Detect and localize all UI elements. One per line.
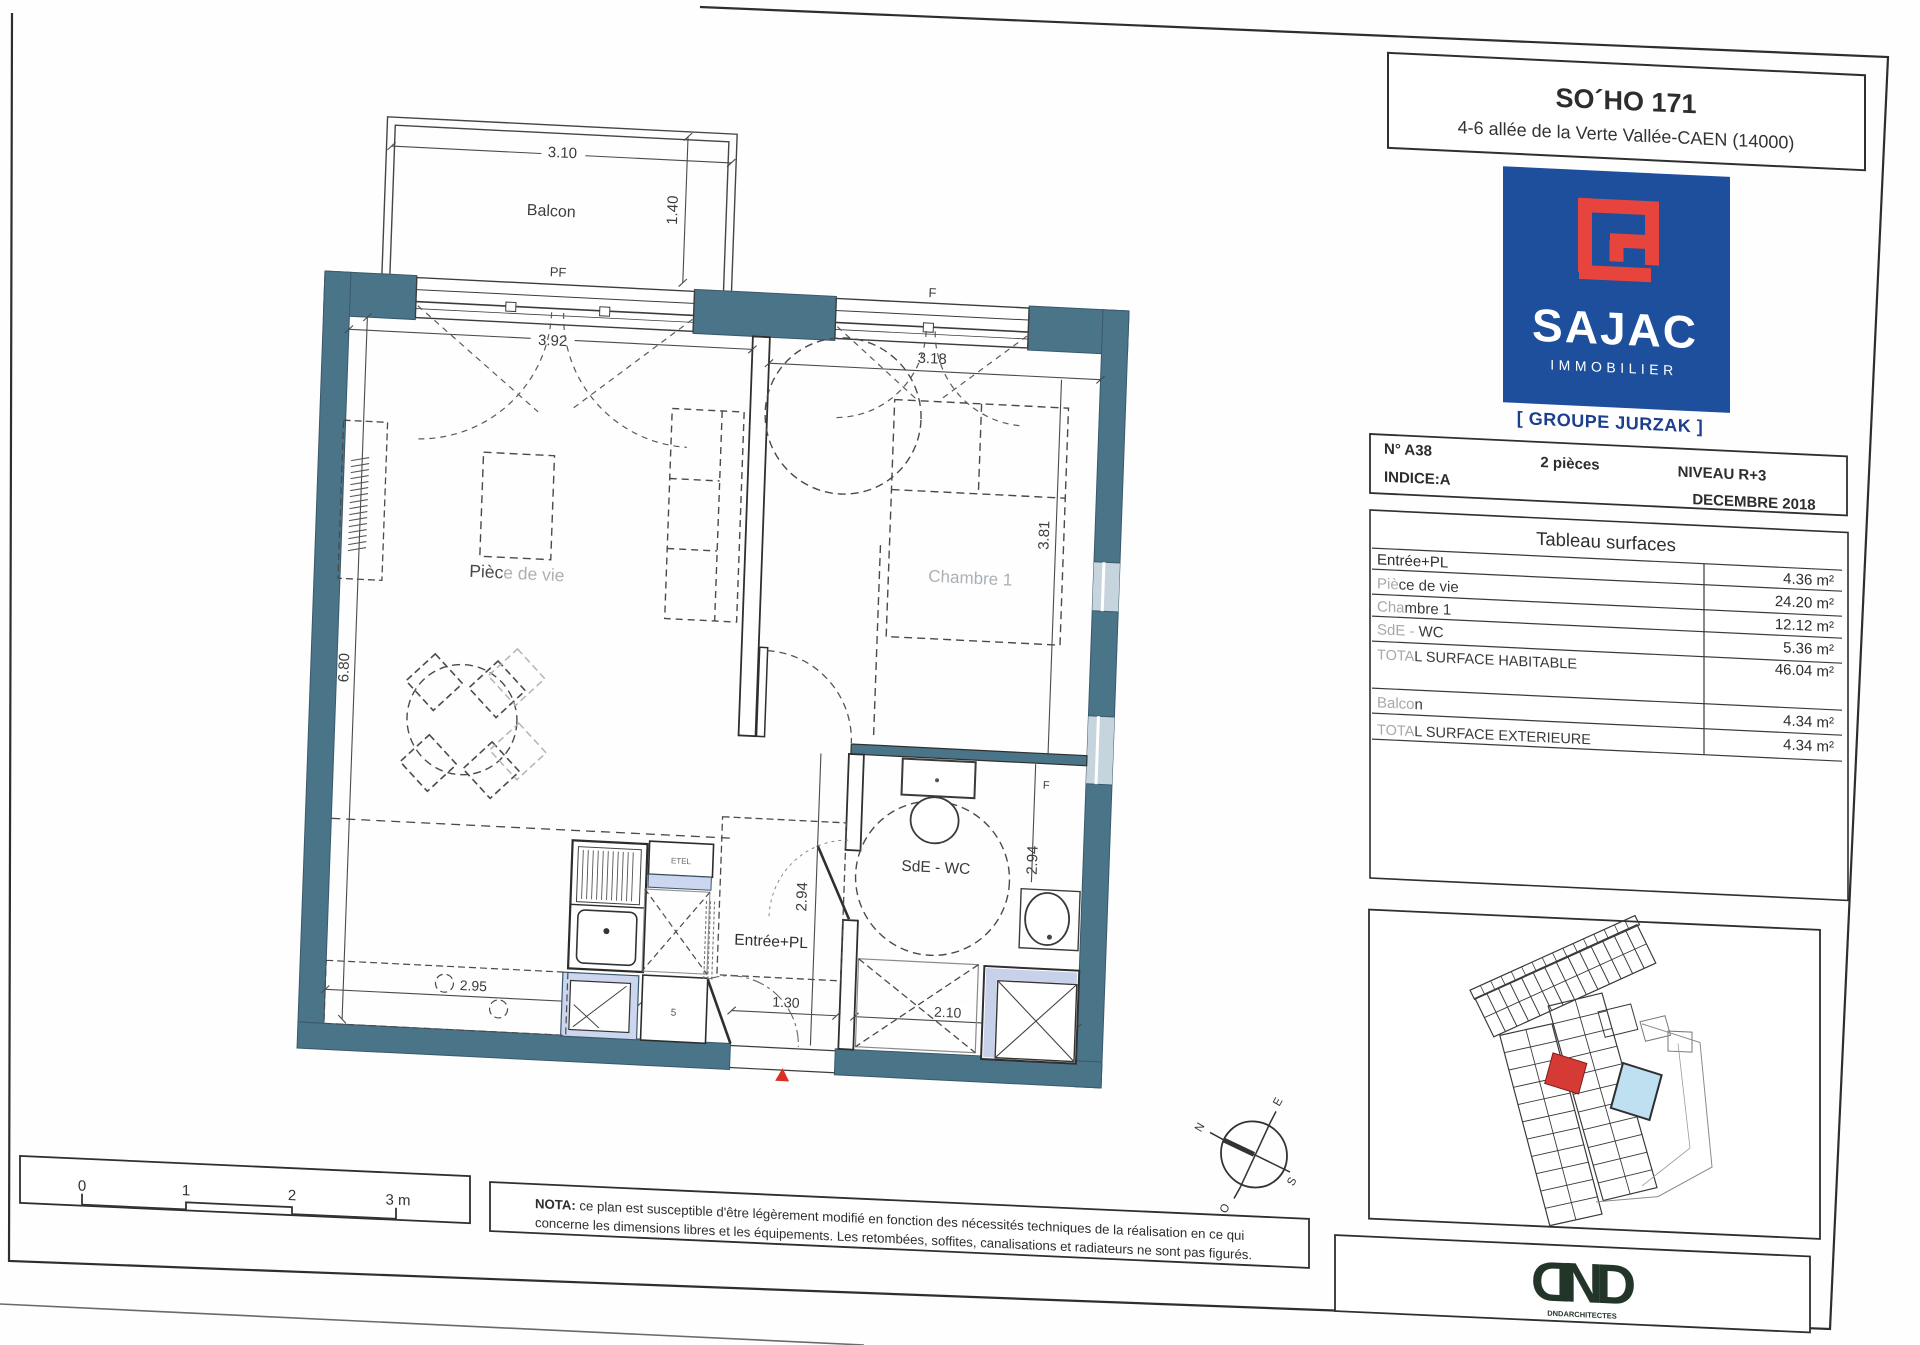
svg-text:2.95: 2.95 [459, 977, 487, 994]
svg-text:Entrée+PL: Entrée+PL [1377, 551, 1448, 571]
svg-text:46.04 m²: 46.04 m² [1775, 661, 1834, 681]
svg-text:5: 5 [671, 1008, 677, 1019]
svg-text:3.18: 3.18 [917, 350, 947, 368]
svg-text:D: D [1596, 1252, 1636, 1317]
svg-text:F: F [928, 285, 937, 300]
svg-text:4.36 m²: 4.36 m² [1783, 570, 1834, 589]
svg-text:INDICE:A: INDICE:A [1384, 469, 1451, 489]
svg-text:2.10: 2.10 [934, 1004, 962, 1021]
svg-text:1.40: 1.40 [664, 195, 682, 225]
svg-text:2.94: 2.94 [1024, 845, 1042, 875]
svg-text:3 m: 3 m [385, 1191, 410, 1209]
svg-text:2.94: 2.94 [793, 882, 811, 912]
svg-text:N° A38: N° A38 [1384, 441, 1432, 460]
svg-text:1.30: 1.30 [772, 994, 800, 1011]
svg-text:2 pièces: 2 pièces [1540, 454, 1599, 474]
svg-text:ETEL: ETEL [671, 856, 692, 866]
svg-text:Balcon: Balcon [1377, 694, 1423, 713]
svg-text:SdE - WC: SdE - WC [901, 858, 970, 878]
svg-text:12.12 m²: 12.12 m² [1775, 616, 1834, 636]
svg-text:SdE - WC: SdE - WC [1377, 621, 1444, 641]
svg-text:4.34 m²: 4.34 m² [1783, 712, 1834, 731]
svg-text:3.81: 3.81 [1035, 520, 1053, 550]
svg-text:SAJAC: SAJAC [1532, 299, 1698, 359]
svg-text:6.80: 6.80 [335, 653, 353, 683]
svg-text:Balcon: Balcon [527, 202, 576, 221]
svg-text:PF: PF [550, 264, 567, 280]
svg-text:2: 2 [288, 1187, 296, 1204]
svg-text:5.36 m²: 5.36 m² [1783, 639, 1834, 658]
svg-text:24.20 m²: 24.20 m² [1775, 593, 1834, 613]
svg-text:Chambre 1: Chambre 1 [1377, 598, 1451, 618]
svg-text:0: 0 [78, 1178, 86, 1195]
svg-text:4.34 m²: 4.34 m² [1783, 736, 1834, 755]
svg-text:1: 1 [182, 1182, 190, 1199]
svg-text:3.92: 3.92 [538, 332, 568, 350]
svg-text:3.10: 3.10 [547, 144, 577, 162]
svg-text:F: F [1043, 780, 1050, 792]
